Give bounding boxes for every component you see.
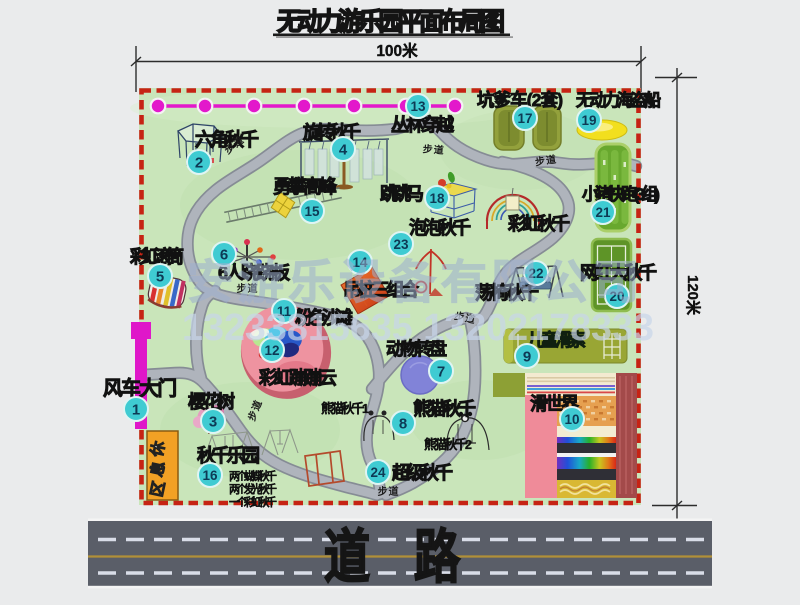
svg-text:3: 3 (209, 413, 217, 430)
svg-text:120米: 120米 (684, 275, 702, 316)
svg-text:1: 1 (132, 401, 140, 418)
svg-text:勇攀高峰: 勇攀高峰 (273, 176, 337, 197)
svg-text:8: 8 (399, 415, 407, 432)
svg-text:熊猫秋千: 熊猫秋千 (413, 398, 476, 419)
svg-text:无动力游乐园平面布局图: 无动力游乐园平面布局图 (277, 7, 505, 36)
svg-text:16: 16 (202, 468, 218, 483)
svg-text:19: 19 (581, 113, 596, 128)
svg-text:13: 13 (410, 99, 426, 114)
svg-text:2: 2 (195, 154, 203, 171)
svg-text:23: 23 (393, 237, 409, 252)
svg-text:熊猫秋千2: 熊猫秋千2 (424, 437, 472, 452)
svg-text:100米: 100米 (376, 41, 418, 60)
svg-text:路: 路 (414, 525, 461, 590)
svg-text:18: 18 (429, 191, 445, 206)
svg-text:彩虹蹦蹦云: 彩虹蹦蹦云 (258, 367, 337, 388)
svg-text:21: 21 (595, 205, 611, 220)
svg-text:道: 道 (324, 525, 370, 590)
svg-text:24: 24 (370, 465, 386, 480)
svg-text:泡泡秋千: 泡泡秋千 (409, 217, 471, 238)
svg-text:超级秋千: 超级秋千 (392, 462, 453, 483)
svg-text:10: 10 (564, 412, 579, 427)
svg-text:步道: 步道 (378, 485, 399, 498)
svg-text:5: 5 (156, 268, 164, 285)
svg-text:一个彩虹秋千: 一个彩虹秋千 (229, 495, 277, 509)
svg-text:17: 17 (517, 111, 532, 126)
svg-text:15: 15 (304, 204, 320, 219)
svg-text:4: 4 (339, 141, 348, 158)
svg-text:跳跳马: 跳跳马 (380, 183, 424, 204)
svg-text:无动力海盗船: 无动力海盗船 (575, 90, 661, 110)
svg-text:彩虹秋千: 彩虹秋千 (507, 213, 570, 234)
svg-text:两个蝴蝶秋千: 两个蝴蝶秋千 (229, 469, 277, 483)
svg-text:两个发光秋千: 两个发光秋千 (229, 482, 277, 496)
svg-text:小猪快跑(3组): 小猪快跑(3组) (582, 184, 660, 204)
svg-text:安游乐设备有限公司: 安游乐设备有限公司 (187, 256, 639, 308)
svg-text:7: 7 (437, 363, 445, 380)
svg-text:熊猫秋千1: 熊猫秋千1 (321, 401, 369, 416)
svg-text:风车大门: 风车大门 (103, 377, 177, 400)
svg-text:13233815635 13202178333: 13233815635 13202178333 (182, 307, 654, 349)
svg-text:9: 9 (523, 348, 531, 365)
